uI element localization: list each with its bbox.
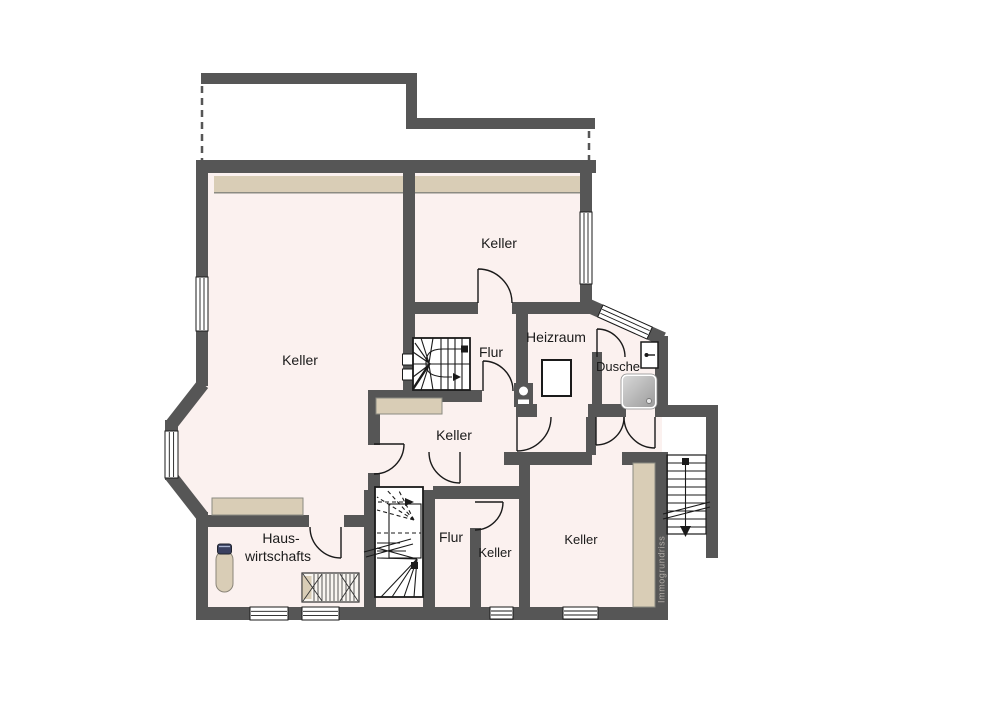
window-left-bay <box>165 431 178 478</box>
stairs-upper-winder <box>413 338 470 390</box>
wall-small-keller-east <box>519 452 530 608</box>
wall-flur-lower-top <box>433 486 521 499</box>
floor-plan-svg: Keller Keller Keller Keller Keller Flur … <box>0 0 1000 706</box>
boiler <box>542 360 571 396</box>
window-bottom-hwr-2 <box>302 607 339 620</box>
footprint-wall-step <box>406 84 417 118</box>
floor-plan-page: Keller Keller Keller Keller Keller Flur … <box>0 0 1000 706</box>
sideboard-middle-keller <box>376 398 442 414</box>
stair-lower-start-marker <box>411 562 418 569</box>
label-keller-middle: Keller <box>436 427 472 443</box>
label-dusche: Dusche <box>596 359 640 374</box>
wall-small-keller-west <box>470 528 481 608</box>
shelf-strip-bottom-right-keller <box>633 463 655 607</box>
wall-main-top <box>196 160 596 173</box>
label-hauswirtschaft-line1: Haus- <box>262 530 300 546</box>
heizraum-wall-fixture <box>514 383 533 407</box>
window-right-top-keller <box>580 212 592 284</box>
label-heizraum: Heizraum <box>526 329 586 345</box>
wall-left-lower <box>196 512 208 620</box>
wall-hwr-top-a <box>202 515 309 527</box>
iron <box>218 544 232 554</box>
stair-ext-start-marker <box>682 458 689 465</box>
label-keller-left: Keller <box>282 352 318 368</box>
wall-ext-stair-top <box>655 405 718 417</box>
label-keller-small: Keller <box>478 545 512 560</box>
watermark-text: Immogrundriss <box>657 536 667 603</box>
window-bottom-small-keller <box>490 607 513 619</box>
wall-lower-stair-east <box>423 490 435 608</box>
wall-divider-top-kellers <box>403 173 415 303</box>
shelf-band-top-keller <box>415 176 580 193</box>
stair-upper-start-marker <box>461 346 468 353</box>
upper-footprint-outline <box>201 73 595 160</box>
window-bottom-hwr-1 <box>250 607 288 620</box>
dusche-sink <box>641 342 658 368</box>
shelf-band-left-keller <box>214 176 403 193</box>
stair-ext-arrowhead-down <box>680 526 691 537</box>
ironing-board <box>216 544 233 592</box>
label-flur-upper: Flur <box>479 344 503 360</box>
window-bottom-right-keller <box>563 607 598 619</box>
shower-tray <box>621 374 657 409</box>
wall-left-upper <box>196 160 208 386</box>
label-hauswirtschaft-line2: wirtschafts <box>244 548 311 564</box>
label-keller-bottom-right: Keller <box>564 532 598 547</box>
wall-top-keller-bottom-left <box>403 302 478 314</box>
shower-drain <box>647 399 652 404</box>
drying-rack <box>302 573 359 602</box>
label-keller-top: Keller <box>481 235 517 251</box>
wall-hall-south-a <box>504 452 592 465</box>
wall-ext-stair-right <box>706 417 718 558</box>
window-left-upper <box>196 277 208 331</box>
footprint-wall-right <box>406 118 595 129</box>
label-flur-lower: Flur <box>439 529 463 545</box>
wall-top-keller-bottom-right <box>512 302 592 314</box>
stairs-exterior <box>663 455 710 537</box>
footprint-wall-top <box>201 73 417 84</box>
wall-vestibule-west <box>586 417 596 455</box>
sideboard-left-keller <box>212 498 303 515</box>
wall-hwr-top-b <box>344 515 370 527</box>
